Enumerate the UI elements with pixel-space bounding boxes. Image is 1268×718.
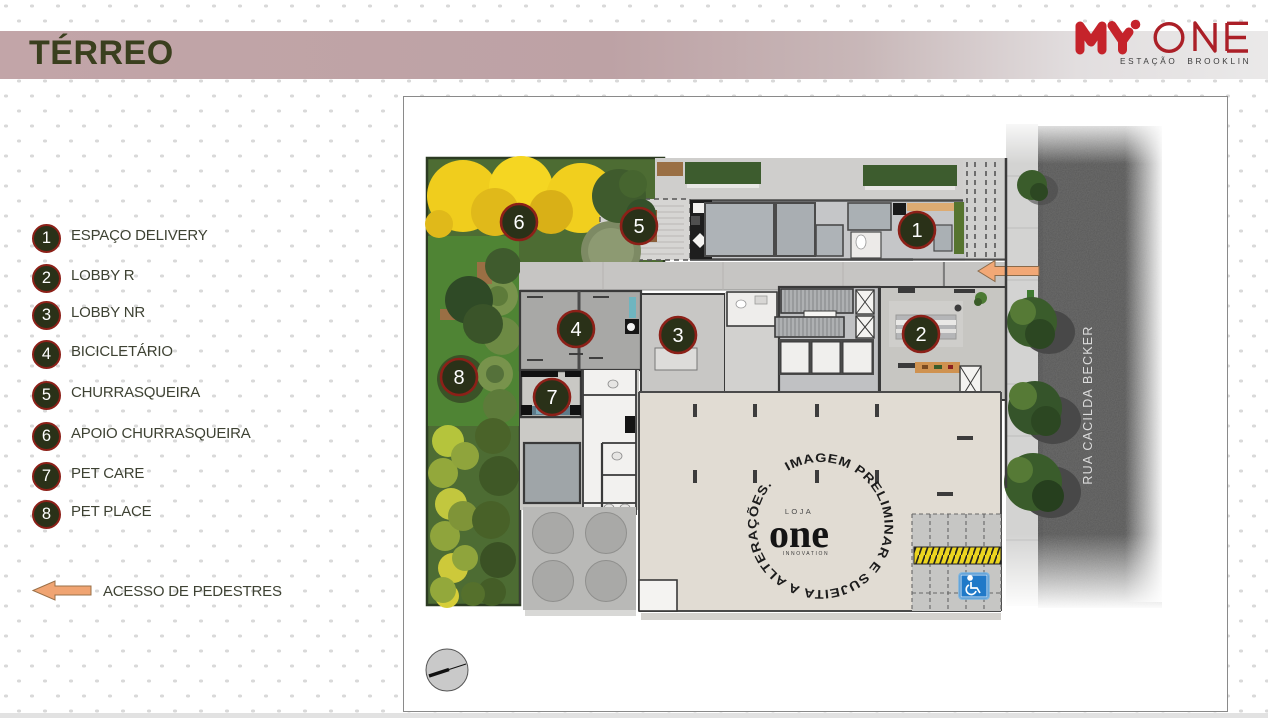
svg-text:2: 2	[915, 324, 926, 346]
svg-text:6: 6	[513, 212, 524, 234]
svg-text:8: 8	[453, 367, 464, 389]
svg-text:ACESSO DE PEDESTRES: ACESSO DE PEDESTRES	[103, 583, 282, 600]
svg-text:5: 5	[633, 216, 644, 238]
svg-text:one: one	[769, 511, 829, 556]
svg-text:4: 4	[570, 319, 581, 341]
svg-text:ESTAÇÃO BROOKLIN: ESTAÇÃO BROOKLIN	[1120, 56, 1251, 66]
svg-text:INNOVATION: INNOVATION	[783, 551, 829, 557]
svg-text:7: 7	[546, 387, 557, 409]
svg-text:RUA CACILDA BECKER: RUA CACILDA BECKER	[1081, 325, 1095, 484]
svg-text:3: 3	[672, 325, 683, 347]
svg-text:1: 1	[911, 220, 922, 242]
